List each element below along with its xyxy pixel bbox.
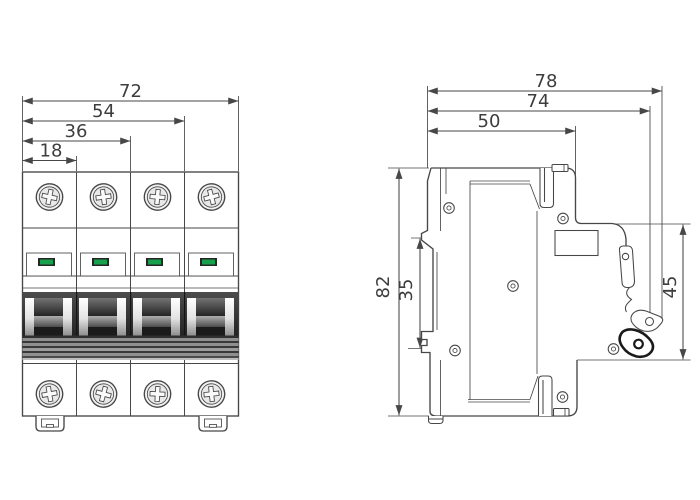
status-indicator-window: [38, 258, 55, 266]
dim-label-50: 50: [478, 111, 501, 132]
handle-spring-contour: [625, 288, 631, 313]
toggle-lever-side: [619, 246, 634, 288]
housing-rivet-icon: [444, 203, 455, 214]
toggle-handle: [79, 298, 126, 336]
terminal-screw-icon: [144, 380, 172, 408]
dim-label-82: 82: [373, 276, 394, 299]
din-rail-clips: [36, 416, 227, 431]
handle-mechanism: [619, 246, 662, 357]
housing-rivet-icon: [608, 344, 619, 355]
green-indicator: [148, 260, 161, 265]
housing-rivet-icon: [557, 392, 568, 403]
din-clip-release-tab: [429, 416, 444, 424]
pivot-hole: [646, 318, 654, 326]
latch-cam-hole: [634, 340, 643, 349]
side-view: 78 74 50 82: [373, 71, 691, 424]
front-view: 72 54 36 18: [23, 81, 239, 431]
terminal-tab-bottom: [554, 409, 570, 417]
breaker-dimension-drawing: 72 54 36 18: [0, 0, 700, 500]
terminal-slot-top: [540, 168, 554, 208]
label-plate: [555, 231, 598, 256]
dim-label-72: 72: [119, 81, 142, 102]
housing-rivet-icon: [558, 213, 569, 224]
status-indicator-window: [200, 258, 217, 266]
dim-one-pole-width: 18: [23, 141, 77, 172]
din-clip: [199, 416, 227, 431]
drawing-canvas: 72 54 36 18: [0, 0, 700, 500]
din-clip: [36, 416, 64, 431]
status-indicator-window: [146, 258, 163, 266]
dim-label-36: 36: [65, 121, 88, 142]
rib-band: [23, 336, 239, 361]
dim-label-45: 45: [660, 276, 681, 299]
dim-label-18: 18: [40, 141, 63, 162]
housing-rivet-icon: [450, 345, 461, 356]
status-indicator-window: [92, 258, 109, 266]
toggle-handle: [25, 298, 72, 336]
terminal-slot-bottom: [539, 376, 553, 416]
dim-label-35: 35: [396, 279, 417, 302]
toggle-handle: [133, 298, 180, 336]
lever-hole: [622, 253, 628, 259]
green-indicator: [94, 260, 107, 265]
terminal-tab-top: [552, 165, 568, 172]
housing-rivet-icon: [508, 281, 519, 292]
dim-label-78: 78: [535, 71, 558, 92]
green-indicator: [202, 260, 215, 265]
green-indicator: [40, 260, 53, 265]
side-body: [422, 165, 627, 424]
dim-label-74: 74: [527, 91, 550, 112]
front-dimensions: 72 54 36 18: [23, 81, 239, 171]
toggle-handle: [187, 298, 234, 336]
toggle-handle-band: [23, 292, 239, 336]
dim-label-54: 54: [92, 101, 115, 122]
